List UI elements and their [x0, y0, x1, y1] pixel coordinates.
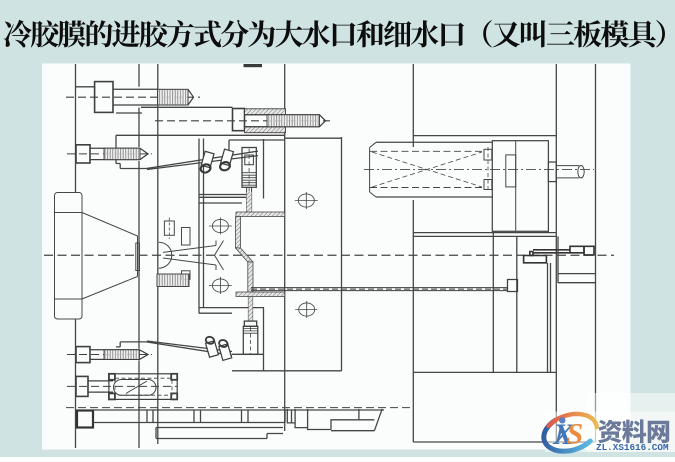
svg-text:S: S: [567, 418, 584, 451]
svg-text:ZL.XS1616.COM: ZL.XS1616.COM: [596, 442, 669, 453]
